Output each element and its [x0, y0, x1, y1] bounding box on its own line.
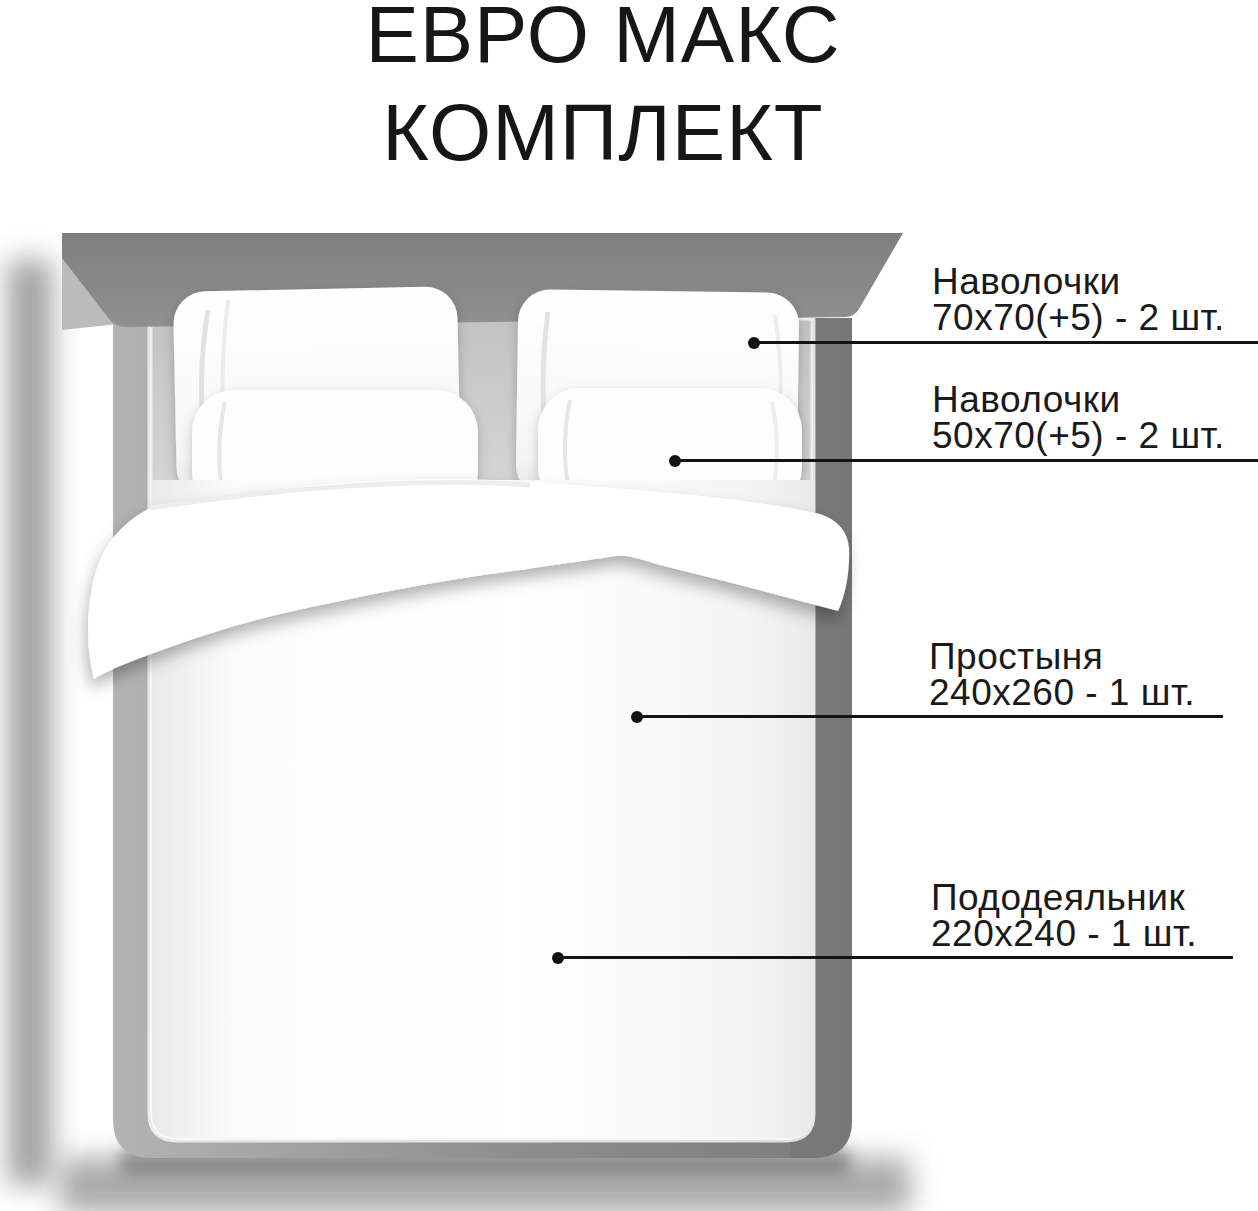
label-pillowcase-50-size: 50х70(+5) - 2 шт.: [932, 418, 1225, 454]
label-sheet-size: 240х260 - 1 шт.: [929, 675, 1195, 711]
label-sheet-item: Простыня: [929, 639, 1195, 675]
page-title: ЕВРО МАКС КОМПЛЕКТ: [0, 0, 1206, 182]
callout-line-pillowcase-70: [754, 341, 1258, 344]
callout-line-duvet-cover: [558, 956, 1233, 959]
label-pillowcase-50: Наволочки 50х70(+5) - 2 шт.: [932, 382, 1225, 454]
bedding-set-infographic: ЕВРО МАКС КОМПЛЕКТ Наволочки 70х70(+5) -…: [0, 0, 1258, 1211]
title-line-1: ЕВРО МАКС: [0, 0, 1206, 84]
label-pillowcase-70: Наволочки 70х70(+5) - 2 шт.: [932, 264, 1225, 336]
title-line-2: КОМПЛЕКТ: [0, 84, 1206, 182]
callout-line-pillowcase-50: [675, 459, 1258, 462]
label-duvet-cover-item: Пододеяльник: [931, 880, 1197, 916]
label-pillowcase-50-item: Наволочки: [932, 382, 1225, 418]
callout-line-sheet: [637, 715, 1223, 718]
label-sheet: Простыня 240х260 - 1 шт.: [929, 639, 1195, 711]
label-pillowcase-70-item: Наволочки: [932, 264, 1225, 300]
label-pillowcase-70-size: 70х70(+5) - 2 шт.: [932, 300, 1225, 336]
wall-shadow-left: [8, 260, 52, 1185]
label-duvet-cover-size: 220х240 - 1 шт.: [931, 916, 1197, 952]
label-duvet-cover: Пододеяльник 220х240 - 1 шт.: [931, 880, 1197, 952]
